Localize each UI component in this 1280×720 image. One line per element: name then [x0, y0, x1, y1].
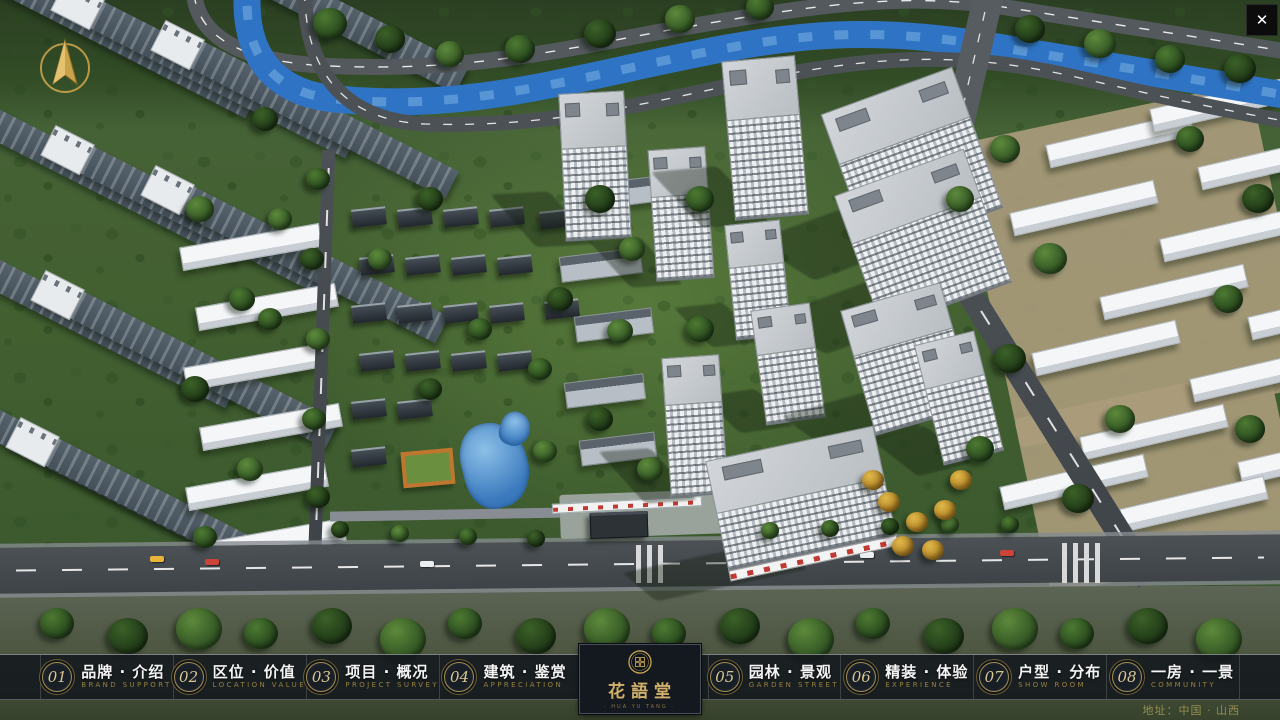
tree [1060, 618, 1094, 649]
vehicle [420, 561, 434, 567]
tree [40, 608, 74, 639]
house [405, 350, 441, 371]
tree [181, 376, 209, 402]
tree [516, 618, 556, 654]
tree [1213, 285, 1243, 313]
tree [533, 440, 557, 462]
tree [585, 185, 615, 213]
house [397, 398, 433, 419]
tree [720, 608, 760, 644]
tree [375, 25, 405, 53]
crosswalk [1062, 543, 1106, 583]
vehicle [205, 559, 219, 565]
tree [686, 316, 714, 342]
project-logo[interactable]: 花語堂 · HUA YU TANG · [579, 644, 701, 714]
tree [229, 287, 255, 311]
tree [468, 318, 492, 340]
tree [258, 308, 282, 330]
tree [391, 525, 409, 542]
nav-item-garden[interactable]: 05 园林 · 景观 GARDEN STREET [708, 655, 841, 699]
tw [558, 90, 632, 241]
tree [924, 618, 964, 654]
clubhouse [401, 448, 456, 488]
tree [300, 248, 324, 270]
nav-num-badge: 08 [1112, 662, 1142, 692]
tree [856, 608, 890, 639]
tree [862, 470, 884, 490]
house [489, 302, 525, 323]
tree [312, 608, 352, 644]
tree [331, 521, 349, 538]
tree [237, 457, 263, 481]
tree [306, 328, 330, 350]
sales-app-window: ✕ 01 品牌 · 介绍 BRAND SUPPORT 02 区位 · 价值 LO… [0, 0, 1280, 720]
tree [881, 518, 899, 535]
tree [1235, 415, 1265, 443]
tree [108, 618, 148, 654]
tree [505, 35, 535, 63]
tree [906, 512, 928, 532]
tree [459, 528, 477, 545]
tree [306, 486, 330, 508]
nav-label: 项目 · 概况 [345, 664, 428, 681]
nav-sublabel: GARDEN STREET [749, 682, 839, 690]
house [351, 446, 387, 467]
tree [686, 186, 714, 212]
tree [761, 522, 779, 539]
house [497, 254, 533, 275]
nav-item-project[interactable]: 03 项目 · 概况 PROJECT SURVEY [306, 655, 439, 699]
nav-item-interior[interactable]: 06 精装 · 体验 EXPERIENCE [840, 655, 973, 699]
nav-sublabel: APPRECIATION [483, 682, 563, 690]
tree [417, 187, 443, 211]
vehicle [150, 556, 164, 562]
nav-label: 区位 · 价值 [213, 664, 296, 681]
logo-cell: 花語堂 · HUA YU TANG · [572, 655, 708, 699]
tree [368, 248, 392, 270]
river-and-ring-roads [0, 0, 1280, 200]
nav-num-badge: 02 [174, 662, 204, 692]
tree [547, 287, 573, 311]
nav-sublabel: LOCATION VALUE [213, 682, 306, 690]
tree [665, 5, 695, 33]
tree [990, 135, 1020, 163]
nav-sublabel: SHOW ROOM [1018, 682, 1086, 690]
tree [306, 168, 330, 190]
nav-num-badge: 01 [42, 662, 72, 692]
nav-sublabel: PROJECT SURVEY [345, 682, 439, 690]
vehicle [1000, 550, 1014, 556]
house [397, 302, 433, 323]
nav-item-floorplan[interactable]: 07 户型 · 分布 SHOW ROOM [973, 655, 1106, 699]
nav-sublabel: EXPERIENCE [885, 682, 953, 690]
tree [1105, 405, 1135, 433]
tree [892, 536, 914, 556]
tree [1155, 45, 1185, 73]
tree [821, 520, 839, 537]
nav-label: 精装 · 体验 [885, 664, 968, 681]
nav-item-location[interactable]: 02 区位 · 价值 LOCATION VALUE [173, 655, 306, 699]
logo-subtitle: · HUA YU TANG · [604, 704, 675, 710]
tree [1001, 516, 1019, 533]
house [405, 254, 441, 275]
nav-label: 园林 · 景观 [749, 664, 832, 681]
project-address: 地址：中国 · 山西 [1143, 702, 1241, 718]
nav-item-architecture[interactable]: 04 建筑 · 鉴赏 APPRECIATION [439, 655, 572, 699]
tree [313, 8, 347, 39]
logo-title: 花語堂 [602, 677, 677, 702]
tree [193, 526, 217, 548]
bottom-navbar: 01 品牌 · 介绍 BRAND SUPPORT 02 区位 · 价值 LOCA… [0, 654, 1280, 700]
entrance-gate [590, 511, 649, 539]
compass-icon [36, 34, 94, 96]
nav-item-brand[interactable]: 01 品牌 · 介绍 BRAND SUPPORT [40, 655, 173, 699]
tw [721, 55, 809, 221]
tree [922, 540, 944, 560]
tree [186, 196, 214, 222]
nav-label: 户型 · 分布 [1018, 664, 1101, 681]
nav-sublabel: BRAND SUPPORT [81, 682, 171, 690]
tree [950, 470, 972, 490]
tree [946, 186, 974, 212]
house [359, 350, 395, 371]
seal-emblem-icon [627, 649, 653, 675]
nav-sublabel: COMMUNITY [1151, 682, 1216, 690]
tree [268, 208, 292, 230]
tree [448, 608, 482, 639]
house [351, 398, 387, 419]
tree [244, 618, 278, 649]
house [451, 350, 487, 371]
tree [966, 436, 994, 462]
nav-num-badge: 04 [444, 662, 474, 692]
house [351, 302, 387, 323]
close-button[interactable]: ✕ [1246, 4, 1278, 36]
tree [1176, 126, 1204, 152]
nav-num-badge: 07 [979, 662, 1009, 692]
tree [528, 358, 552, 380]
tree [992, 608, 1038, 650]
tree [637, 457, 663, 481]
tree [607, 319, 633, 343]
tree [418, 378, 442, 400]
nav-num-badge: 05 [710, 662, 740, 692]
tree [619, 237, 645, 261]
tree [1033, 243, 1067, 274]
masterplan-3d-view[interactable] [0, 0, 1280, 720]
mid [564, 373, 647, 409]
house [443, 206, 479, 227]
tree [934, 500, 956, 520]
nav-label: 建筑 · 鉴赏 [483, 664, 566, 681]
tree [302, 408, 326, 430]
tree [587, 407, 613, 431]
nav-num-badge: 06 [846, 662, 876, 692]
house [451, 254, 487, 275]
nav-num-badge: 03 [306, 662, 336, 692]
tree [527, 530, 545, 547]
tree [1128, 608, 1168, 644]
tree [878, 492, 900, 512]
tree [436, 41, 464, 67]
house [351, 206, 387, 227]
nav-label: 品牌 · 介绍 [81, 664, 164, 681]
tree [176, 608, 222, 650]
tree [252, 107, 278, 131]
nav-label: 一房 · 一景 [1151, 664, 1234, 681]
nav-item-views[interactable]: 08 一房 · 一景 COMMUNITY [1106, 655, 1240, 699]
tree [1015, 15, 1045, 43]
